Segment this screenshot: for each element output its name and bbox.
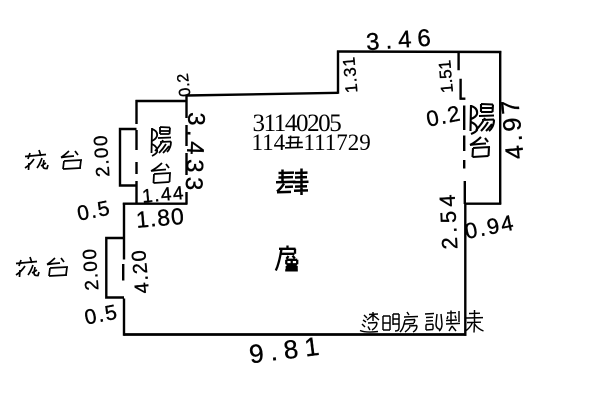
svg-text:3.46: 3.46 <box>365 24 437 56</box>
svg-text:2.54: 2.54 <box>434 190 462 250</box>
svg-text:2.00: 2.00 <box>80 247 104 291</box>
svg-text:114: 114 <box>252 130 286 155</box>
svg-text:111729: 111729 <box>304 130 371 155</box>
svg-text:4.20: 4.20 <box>128 248 154 295</box>
svg-text:0.2: 0.2 <box>175 72 195 98</box>
svg-text:1.80: 1.80 <box>135 203 186 233</box>
svg-text:1.31: 1.31 <box>339 55 361 94</box>
svg-text:4.97: 4.97 <box>496 96 529 161</box>
svg-text:3.433: 3.433 <box>180 112 210 195</box>
svg-text:2.00: 2.00 <box>91 133 115 177</box>
svg-text:1.51: 1.51 <box>435 59 457 94</box>
